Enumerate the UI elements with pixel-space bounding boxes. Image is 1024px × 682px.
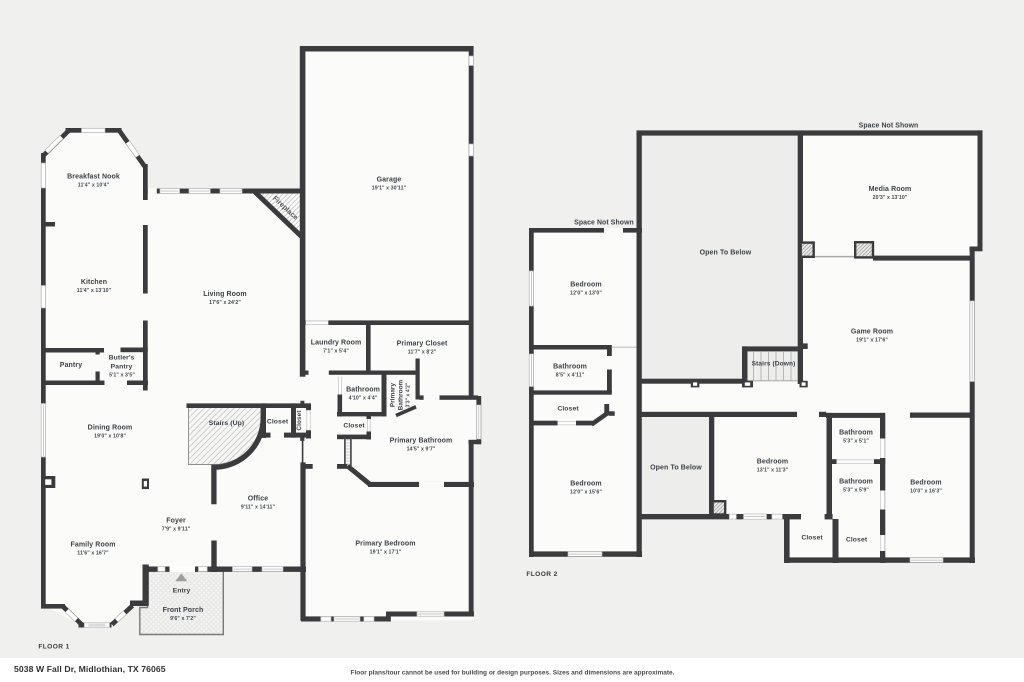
svg-text:Bathroom: Bathroom <box>839 430 873 437</box>
svg-text:Closet: Closet <box>801 535 823 542</box>
svg-text:Bathroom: Bathroom <box>839 479 873 486</box>
svg-text:Bedroom: Bedroom <box>570 282 601 289</box>
svg-text:Laundry Room: Laundry Room <box>311 340 362 347</box>
svg-text:Floor plans/tour cannot be use: Floor plans/tour cannot be used for buil… <box>351 670 675 677</box>
svg-text:17'6" x 24'2": 17'6" x 24'2" <box>209 300 241 306</box>
svg-text:4'10" x 4'4": 4'10" x 4'4" <box>349 396 378 402</box>
svg-text:Open To Below: Open To Below <box>700 250 752 257</box>
svg-text:13'1" x 11'3": 13'1" x 11'3" <box>757 468 789 474</box>
svg-text:19'1" x 30'11": 19'1" x 30'11" <box>372 186 407 192</box>
svg-text:Living Room: Living Room <box>203 291 247 298</box>
svg-text:11'4" x 13'10": 11'4" x 13'10" <box>77 288 112 294</box>
svg-text:Dining Room: Dining Room <box>88 425 133 432</box>
svg-text:10'0" x 16'3": 10'0" x 16'3" <box>910 489 942 495</box>
svg-text:19'1" x 17'1": 19'1" x 17'1" <box>370 550 402 556</box>
svg-text:3'3" x 4'2": 3'3" x 4'2" <box>406 382 412 407</box>
svg-text:Office: Office <box>248 496 268 503</box>
svg-text:7'9" x 9'11": 7'9" x 9'11" <box>162 527 191 533</box>
svg-text:Closet: Closet <box>296 410 303 431</box>
svg-text:Pantry: Pantry <box>60 362 82 369</box>
svg-text:7'1" x 5'4": 7'1" x 5'4" <box>323 349 349 355</box>
svg-text:Kitchen: Kitchen <box>81 279 107 286</box>
svg-text:Closet: Closet <box>557 406 579 413</box>
svg-text:Bathroom: Bathroom <box>553 364 587 371</box>
svg-text:Bedroom: Bedroom <box>570 481 601 488</box>
svg-text:Pantry: Pantry <box>111 364 133 371</box>
svg-text:FLOOR 2: FLOOR 2 <box>526 571 557 578</box>
svg-text:Open To Below: Open To Below <box>650 465 702 472</box>
svg-text:12'0" x 13'0": 12'0" x 13'0" <box>570 291 602 297</box>
svg-text:Media Room: Media Room <box>869 186 912 193</box>
svg-text:19'0" x 10'8": 19'0" x 10'8" <box>94 434 126 440</box>
svg-text:Primary: Primary <box>390 383 397 408</box>
svg-text:Closet: Closet <box>846 537 868 544</box>
svg-text:20'3" x 13'10": 20'3" x 13'10" <box>873 195 908 201</box>
svg-text:11'6" x 16'7": 11'6" x 16'7" <box>77 551 109 557</box>
svg-text:Bathroom: Bathroom <box>346 387 380 394</box>
svg-text:9'11" x 14'11": 9'11" x 14'11" <box>241 505 276 511</box>
svg-text:Primary Bathroom: Primary Bathroom <box>390 438 453 445</box>
svg-text:Breakfast Nook: Breakfast Nook <box>67 174 120 181</box>
svg-text:5'3" x 5'9": 5'3" x 5'9" <box>843 488 869 494</box>
svg-text:Bedroom: Bedroom <box>757 459 788 466</box>
svg-text:12'0" x 15'6": 12'0" x 15'6" <box>570 490 602 496</box>
svg-text:Space Not Shown: Space Not Shown <box>859 123 919 130</box>
svg-text:14'5" x 9'7": 14'5" x 9'7" <box>407 447 436 453</box>
svg-text:11'7" x 8'2": 11'7" x 8'2" <box>408 350 437 356</box>
svg-text:Foyer: Foyer <box>166 518 186 525</box>
svg-text:19'1" x 17'6": 19'1" x 17'6" <box>856 338 888 344</box>
svg-text:5'1" x 3'5": 5'1" x 3'5" <box>109 373 135 379</box>
svg-text:Entry: Entry <box>173 588 191 595</box>
svg-text:Closet: Closet <box>343 422 365 429</box>
svg-text:Butler's: Butler's <box>109 355 135 362</box>
svg-text:FLOOR 1: FLOOR 1 <box>38 644 69 651</box>
svg-text:5038 W Fall Dr, Midlothian, TX: 5038 W Fall Dr, Midlothian, TX 76065 <box>14 664 166 674</box>
svg-text:Family Room: Family Room <box>70 542 115 549</box>
svg-text:Garage: Garage <box>377 177 402 184</box>
svg-text:Game Room: Game Room <box>851 329 893 336</box>
svg-text:Primary Bedroom: Primary Bedroom <box>355 541 415 548</box>
svg-text:Closet: Closet <box>267 419 289 426</box>
svg-text:Stairs (Up): Stairs (Up) <box>209 420 244 427</box>
svg-text:Space Not Shown: Space Not Shown <box>574 220 634 227</box>
svg-text:Front Porch: Front Porch <box>163 607 204 614</box>
svg-text:8'5" x 4'11": 8'5" x 4'11" <box>556 373 585 379</box>
svg-text:Primary Closet: Primary Closet <box>397 341 448 348</box>
svg-text:Stairs (Down): Stairs (Down) <box>752 361 796 368</box>
svg-text:11'4" x 10'4": 11'4" x 10'4" <box>78 183 110 189</box>
svg-text:5'3" x 5'1": 5'3" x 5'1" <box>843 439 869 445</box>
svg-text:Bathroom: Bathroom <box>398 379 405 410</box>
svg-text:9'6" x 7'2": 9'6" x 7'2" <box>170 616 196 622</box>
svg-text:Bedroom: Bedroom <box>910 480 941 487</box>
